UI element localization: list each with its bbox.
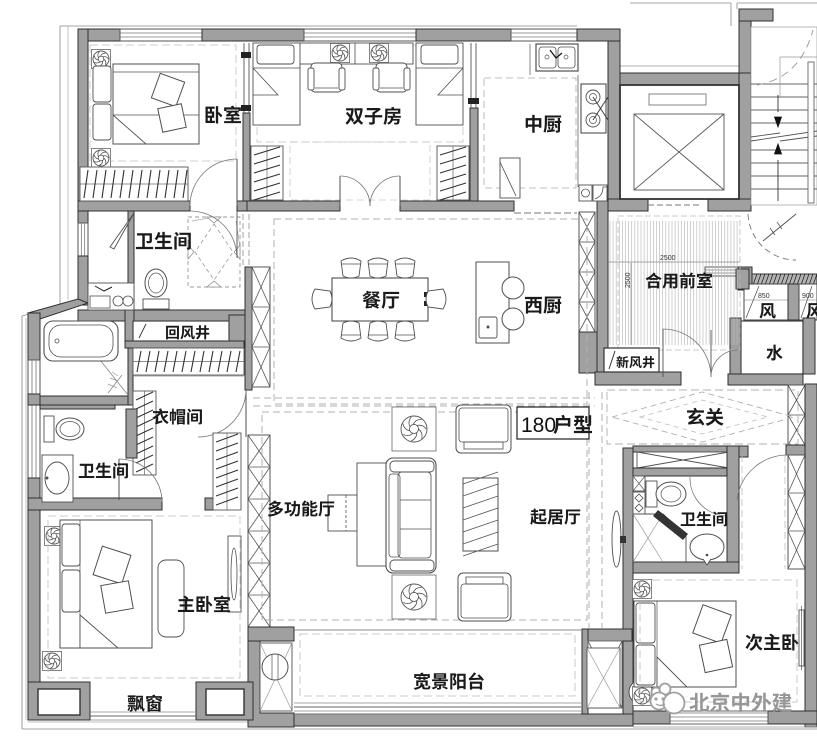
svg-text:850: 850 (758, 293, 770, 300)
svg-text:180: 180 (521, 414, 556, 437)
svg-text:2500: 2500 (660, 255, 676, 262)
svg-text:2500: 2500 (625, 272, 632, 288)
svg-text:900: 900 (802, 293, 814, 300)
